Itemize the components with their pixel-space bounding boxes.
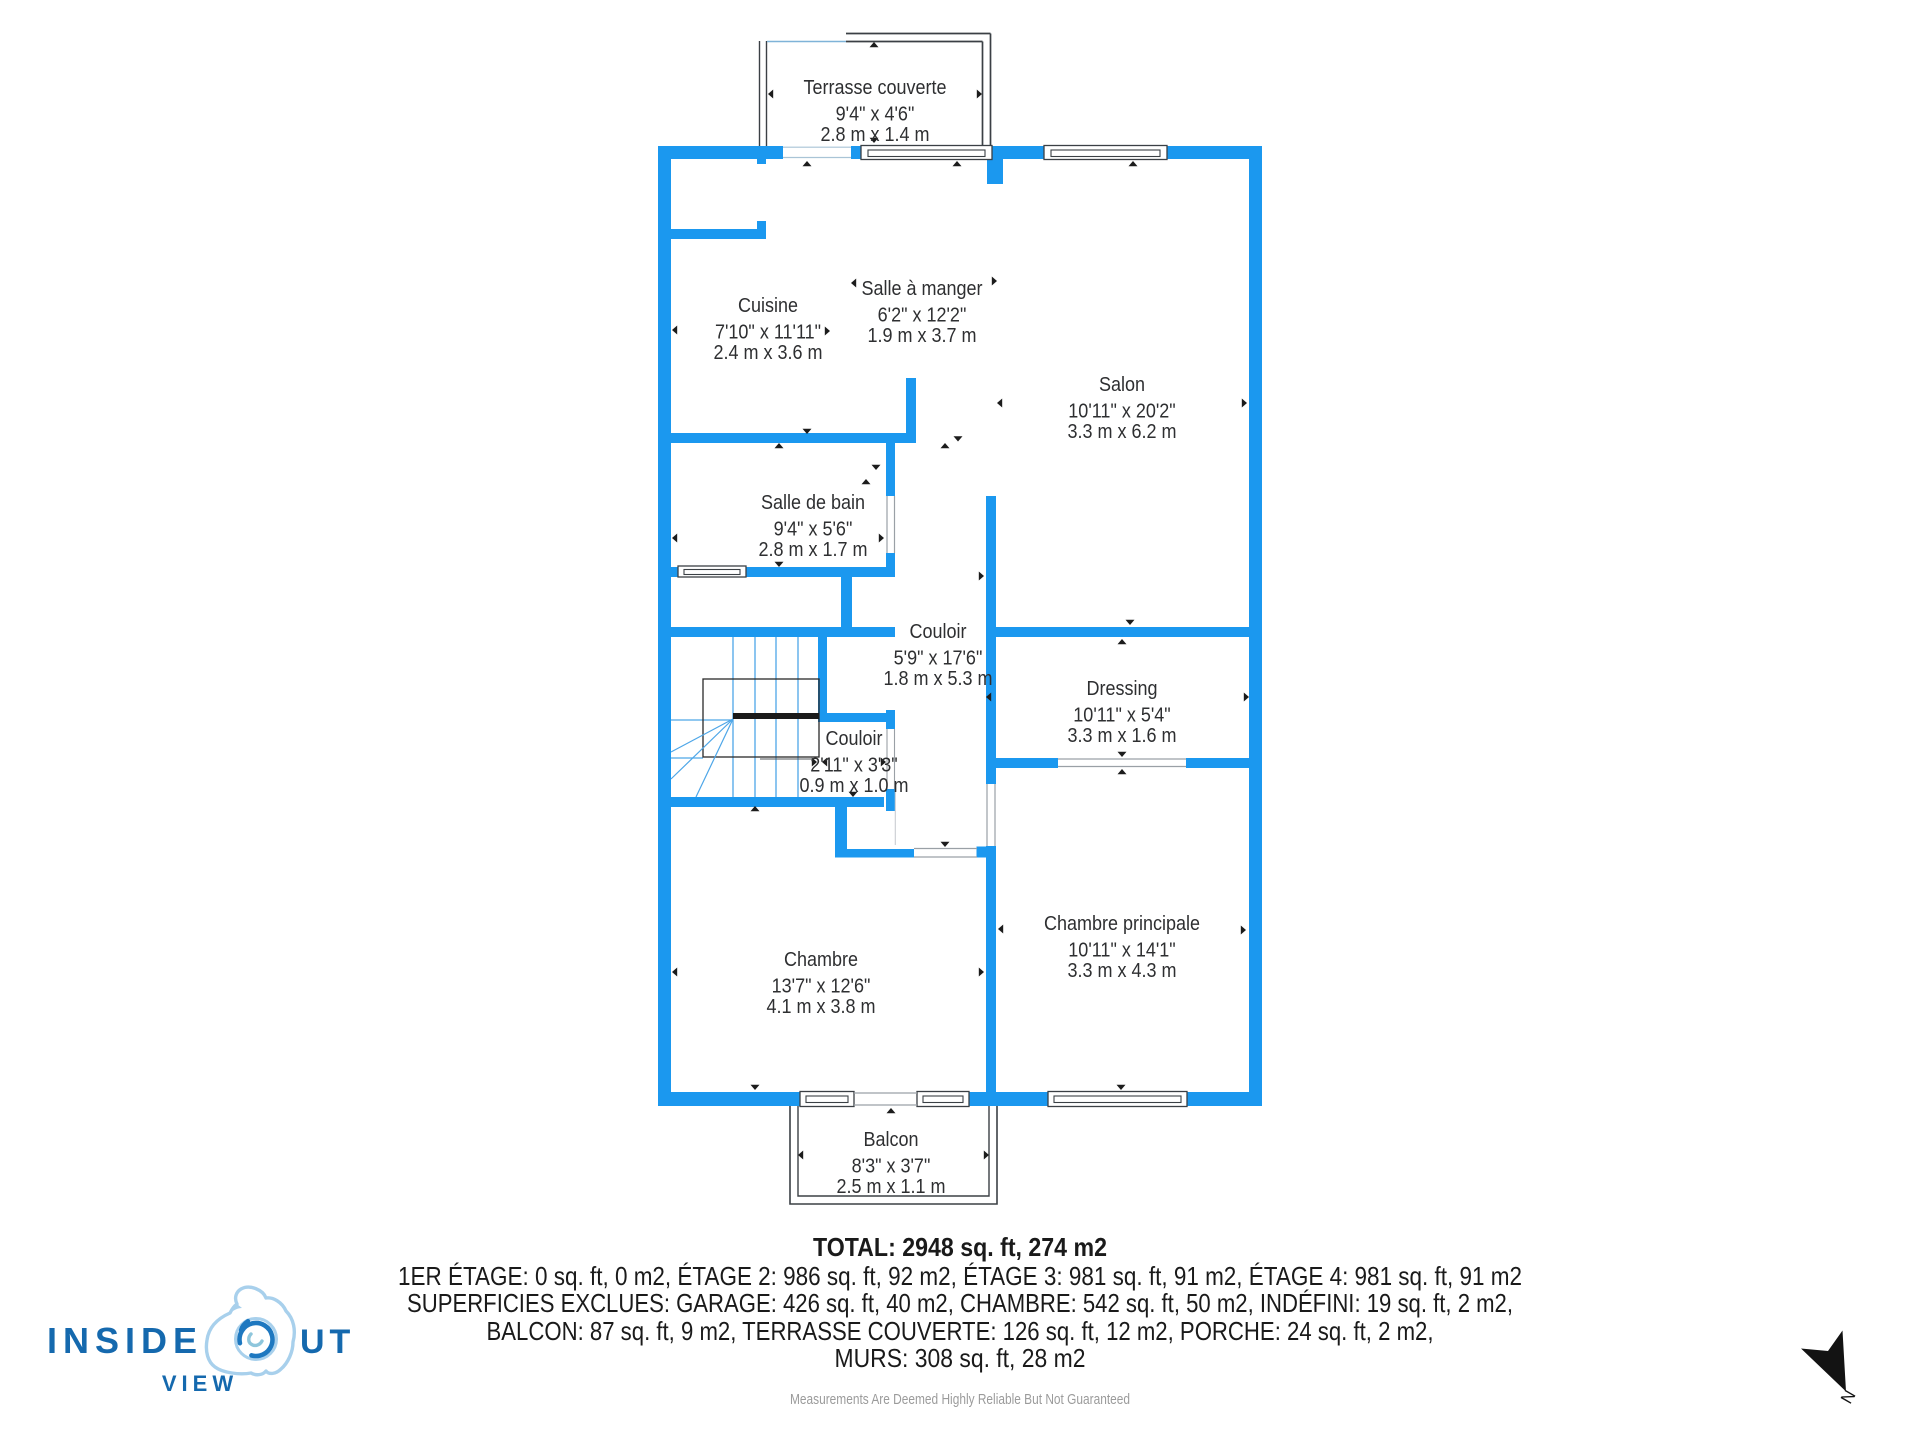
svg-text:Dressing: Dressing <box>1087 678 1158 700</box>
svg-text:Chambre: Chambre <box>784 949 858 971</box>
svg-text:3.3 m x 1.6 m: 3.3 m x 1.6 m <box>1067 725 1176 747</box>
svg-text:2.8 m x 1.7 m: 2.8 m x 1.7 m <box>758 539 867 561</box>
svg-text:Couloir: Couloir <box>910 621 967 643</box>
svg-text:2.8 m x 1.4 m: 2.8 m x 1.4 m <box>820 124 929 146</box>
svg-text:10'11" x 5'4": 10'11" x 5'4" <box>1073 705 1170 727</box>
svg-text:2.4 m x 3.6 m: 2.4 m x 3.6 m <box>713 342 822 364</box>
svg-text:Salon: Salon <box>1099 374 1145 396</box>
svg-text:8'3" x 3'7": 8'3" x 3'7" <box>852 1156 931 1178</box>
svg-text:Chambre principale: Chambre principale <box>1044 913 1200 935</box>
svg-text:1.9 m x 3.7 m: 1.9 m x 3.7 m <box>867 325 976 347</box>
svg-text:Cuisine: Cuisine <box>738 295 798 317</box>
svg-text:4.1 m x 3.8 m: 4.1 m x 3.8 m <box>766 996 875 1018</box>
svg-text:10'11" x 14'1": 10'11" x 14'1" <box>1068 940 1175 962</box>
svg-text:Salle de bain: Salle de bain <box>761 492 865 514</box>
svg-text:9'4" x 4'6": 9'4" x 4'6" <box>836 104 915 126</box>
svg-text:INSIDE: INSIDE <box>47 1320 203 1361</box>
svg-text:MURS: 308 sq. ft, 28 m2: MURS: 308 sq. ft, 28 m2 <box>835 1343 1086 1373</box>
svg-text:2.5 m x 1.1 m: 2.5 m x 1.1 m <box>836 1176 945 1198</box>
svg-text:0.9 m x 1.0 m: 0.9 m x 1.0 m <box>799 775 908 797</box>
svg-text:BALCON: 87 sq. ft, 9 m2, TERRA: BALCON: 87 sq. ft, 9 m2, TERRASSE COUVER… <box>487 1316 1434 1346</box>
svg-text:UT: UT <box>300 1323 355 1361</box>
svg-text:10'11" x 20'2": 10'11" x 20'2" <box>1068 401 1175 423</box>
svg-text:9'4" x 5'6": 9'4" x 5'6" <box>774 519 853 541</box>
svg-text:3.3 m x 6.2 m: 3.3 m x 6.2 m <box>1067 421 1176 443</box>
svg-text:TOTAL: 2948 sq. ft, 274 m2: TOTAL: 2948 sq. ft, 274 m2 <box>813 1232 1107 1262</box>
svg-text:6'2" x 12'2": 6'2" x 12'2" <box>878 305 967 327</box>
svg-text:Measurements Are Deemed Highly: Measurements Are Deemed Highly Reliable … <box>790 1391 1130 1408</box>
svg-text:Balcon: Balcon <box>864 1129 919 1151</box>
svg-text:Salle à manger: Salle à manger <box>861 278 982 300</box>
svg-text:1.8 m x 5.3 m: 1.8 m x 5.3 m <box>883 668 992 690</box>
svg-text:7'10" x 11'11": 7'10" x 11'11" <box>715 322 821 344</box>
svg-text:Terrasse couverte: Terrasse couverte <box>803 77 946 99</box>
svg-text:5'9" x 17'6": 5'9" x 17'6" <box>894 648 983 670</box>
svg-text:SUPERFICIES EXCLUES: GARAGE: 4: SUPERFICIES EXCLUES: GARAGE: 426 sq. ft,… <box>407 1288 1513 1318</box>
svg-text:13'7" x 12'6": 13'7" x 12'6" <box>772 976 871 998</box>
svg-text:VIEW: VIEW <box>162 1371 238 1396</box>
svg-text:3.3 m x 4.3 m: 3.3 m x 4.3 m <box>1067 960 1176 982</box>
svg-text:1ER ÉTAGE: 0 sq. ft, 0 m2, ÉTA: 1ER ÉTAGE: 0 sq. ft, 0 m2, ÉTAGE 2: 986 … <box>398 1261 1522 1291</box>
svg-text:2'11" x 3'3": 2'11" x 3'3" <box>810 755 897 777</box>
svg-text:Couloir: Couloir <box>826 728 883 750</box>
